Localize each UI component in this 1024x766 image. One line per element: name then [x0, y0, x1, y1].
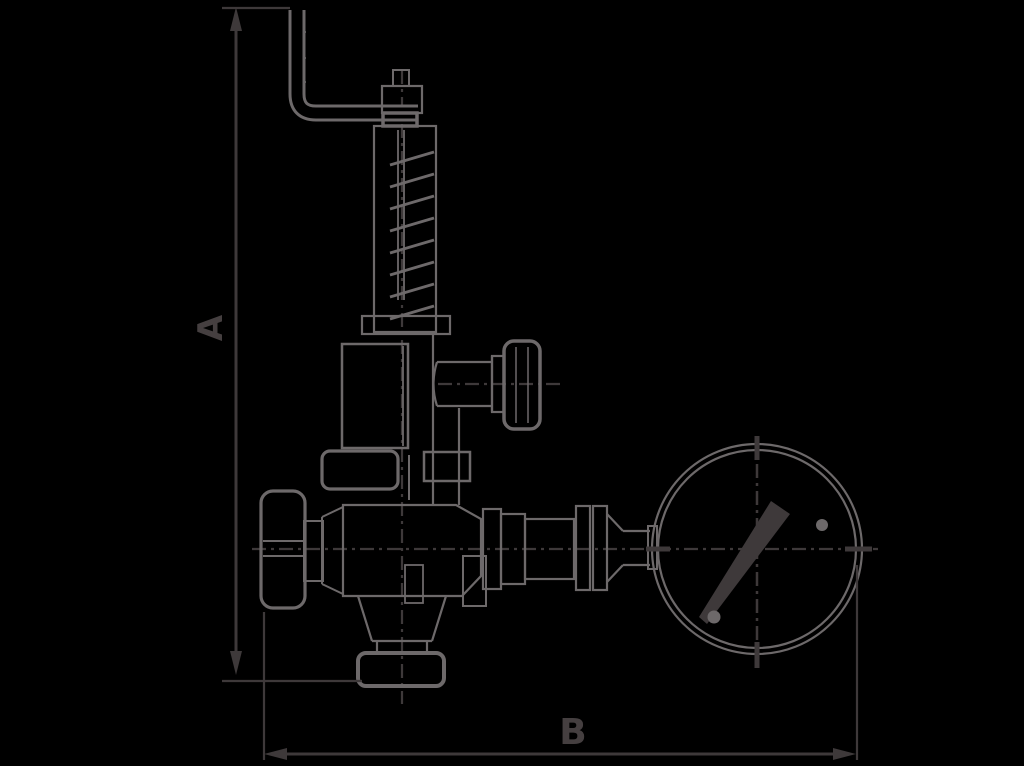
coil-turns	[390, 152, 434, 319]
drawing-canvas: A B	[0, 0, 1024, 766]
flange-ring	[322, 451, 398, 489]
valve-technical-drawing: A B	[0, 0, 1024, 766]
handwheel-stem	[304, 521, 323, 581]
arrowhead-left	[264, 748, 287, 760]
lever-tube-inner	[297, 10, 418, 113]
housing-outline	[374, 126, 436, 332]
side-gauge-port	[409, 334, 540, 505]
pressure-gauge	[646, 436, 872, 668]
arrowhead-down	[230, 651, 242, 675]
dimension-b-label: B	[559, 712, 586, 753]
stem-cone	[322, 507, 343, 594]
body-outline	[343, 505, 481, 596]
gauge-screw-dot-lower	[708, 611, 721, 624]
spring-coil	[390, 152, 434, 319]
arrowhead-right	[833, 748, 856, 760]
arrowhead-up	[230, 7, 242, 31]
dimension-a-label: A	[191, 314, 231, 341]
lever-handle	[297, 10, 418, 113]
pipe-union-band	[424, 452, 470, 481]
gauge-screw-dot-right	[816, 519, 828, 531]
valve-body	[322, 505, 486, 686]
body-inner-detail	[405, 565, 423, 603]
bonnet-outline	[342, 344, 408, 448]
lever-tube-outer	[297, 10, 418, 113]
spring-housing	[362, 126, 450, 334]
bonnet	[342, 344, 408, 448]
dimension-line-b: B	[264, 565, 857, 760]
down-pipe	[433, 334, 459, 505]
gauge-needle	[699, 501, 790, 624]
inlet-flange	[322, 451, 398, 489]
centerlines	[252, 70, 878, 704]
